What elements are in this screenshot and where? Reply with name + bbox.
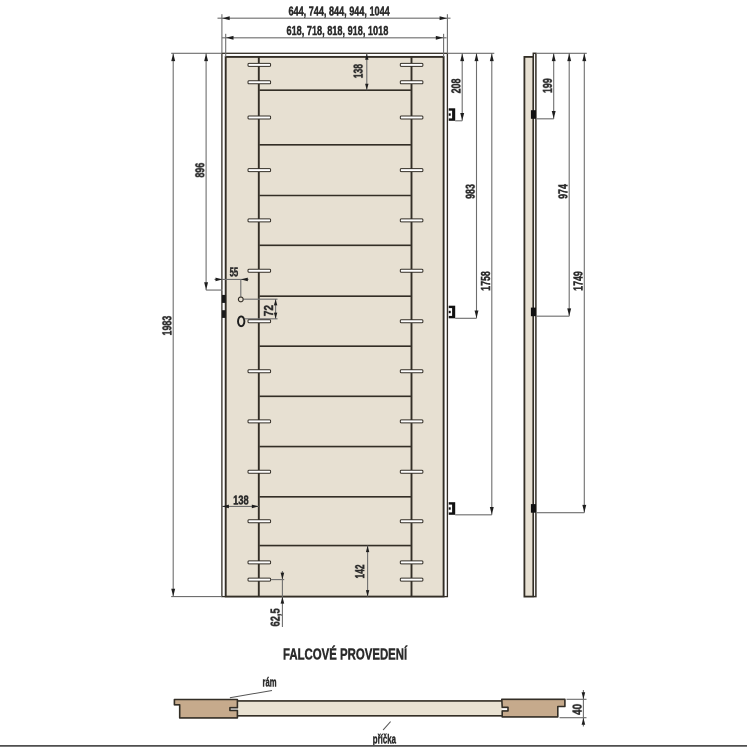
svg-text:983: 983: [463, 184, 478, 199]
svg-text:208: 208: [448, 79, 463, 94]
svg-text:72: 72: [261, 305, 276, 316]
svg-text:FALCOVÉ PROVEDENÍ: FALCOVÉ PROVEDENÍ: [283, 644, 408, 663]
svg-text:896: 896: [192, 163, 207, 178]
svg-text:40: 40: [570, 704, 585, 715]
svg-text:974: 974: [555, 184, 570, 199]
svg-text:644, 744, 844, 944, 1044: 644, 744, 844, 944, 1044: [289, 5, 390, 19]
svg-text:138: 138: [233, 493, 249, 507]
svg-text:618, 718, 818, 918, 1018: 618, 718, 818, 918, 1018: [287, 24, 389, 38]
svg-text:příčka: příčka: [373, 732, 397, 747]
svg-text:199: 199: [540, 78, 555, 93]
svg-text:1758: 1758: [478, 271, 493, 291]
svg-text:1749: 1749: [571, 271, 586, 291]
svg-text:rám: rám: [263, 675, 277, 690]
svg-text:1983: 1983: [159, 316, 174, 336]
svg-text:62,5: 62,5: [268, 608, 283, 626]
svg-text:138: 138: [351, 64, 366, 78]
svg-text:142: 142: [352, 565, 367, 579]
svg-text:55: 55: [230, 265, 239, 279]
